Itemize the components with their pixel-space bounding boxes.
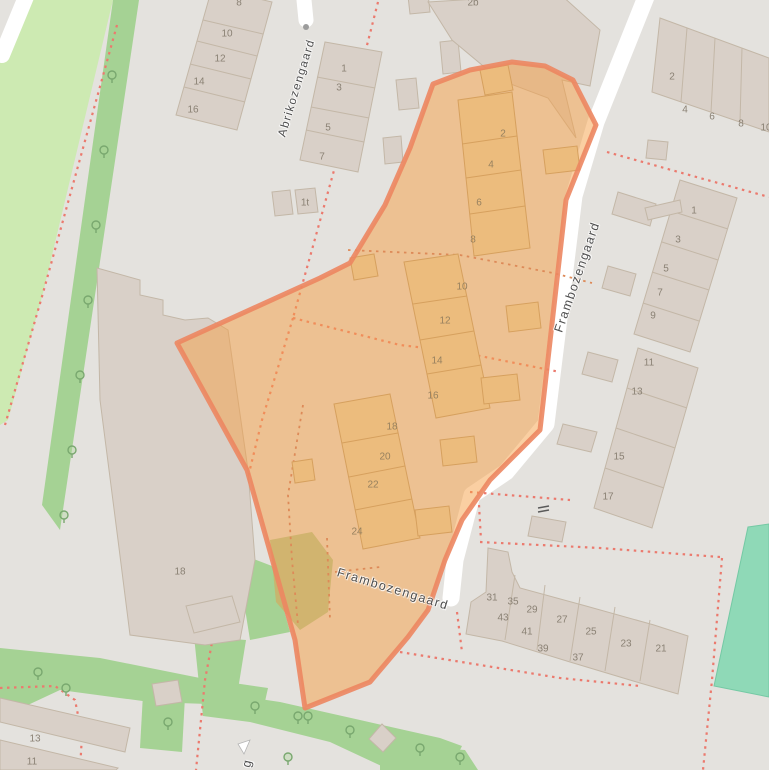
road-abrikozengaard-stub [303, 0, 306, 20]
dead-end-marker [303, 24, 309, 30]
map-geometry [0, 0, 769, 770]
map-canvas[interactable]: 81012141613571t2b24681013579111315171311… [0, 0, 769, 770]
